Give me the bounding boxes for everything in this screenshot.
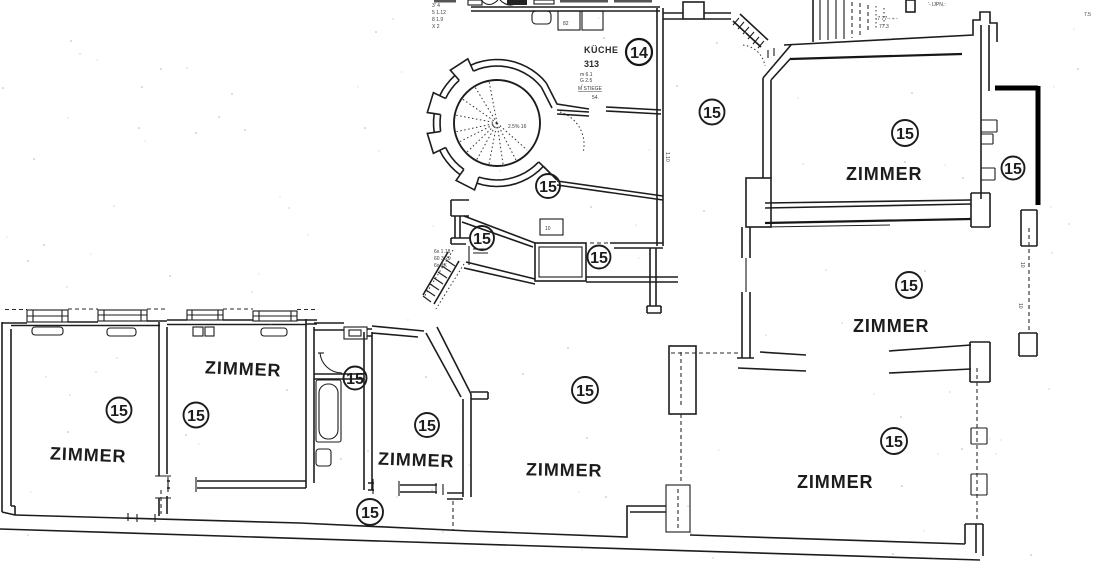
svg-text:KÜCHE: KÜCHE [584,45,619,55]
svg-text:15: 15 [418,418,436,435]
svg-text:5 1.12: 5 1.12 [432,10,446,16]
svg-text:14: 14 [630,45,648,62]
svg-text:ZIMMER: ZIMMER [526,459,603,480]
svg-text:15: 15 [110,403,128,420]
svg-text:'- IJPN.:: '- IJPN.: [928,2,946,8]
svg-text:ZIMMER: ZIMMER [205,357,282,380]
svg-text:313: 313 [584,59,599,69]
svg-text:7.5: 7.5 [1084,12,1091,18]
svg-text:15: 15 [900,278,918,295]
svg-text:15: 15 [346,371,364,388]
svg-text:10: 10 [1017,303,1023,309]
svg-text:15: 15 [473,231,491,248]
svg-text:3' 4: 3' 4 [432,3,440,9]
svg-text:ZIMMER: ZIMMER [50,443,127,466]
svg-text:15: 15 [539,179,557,196]
svg-text:ZIMMER: ZIMMER [378,449,455,472]
svg-text:15: 15 [885,434,903,451]
svg-text:15: 15 [1004,161,1022,178]
svg-text:15: 15 [703,105,721,122]
svg-text:M STIEGE: M STIEGE [578,86,603,92]
svg-text:15: 15 [896,126,914,143]
svg-text:ZIMMER: ZIMMER [846,164,922,184]
svg-text:60 3.29: 60 3.29 [434,256,451,262]
svg-text:82: 82 [563,21,569,27]
svg-text:6x 2K: 6x 2K [434,263,447,269]
svg-text:8 1.9: 8 1.9 [432,17,443,23]
svg-text:15: 15 [576,383,594,400]
svg-text:ZIMMER: ZIMMER [853,316,929,336]
svg-text:2.5% 16: 2.5% 16 [508,124,527,130]
svg-text:X 2: X 2 [432,24,440,30]
svg-text:ZIMMER: ZIMMER [797,472,873,492]
svg-text:6x 1.18: 6x 1.18 [434,249,451,255]
svg-text:1.10: 1.10 [664,152,670,162]
svg-text:54.: 54. [592,95,599,101]
svg-text:15: 15 [590,250,608,267]
svg-text:15: 15 [361,505,379,522]
svg-text:G 2.5: G 2.5 [580,78,592,84]
svg-text:.7 77-- ÷ -: .7 77-- ÷ - [876,16,898,22]
svg-text:15: 15 [187,408,205,425]
svg-text:10: 10 [545,226,551,232]
svg-text:10: 10 [1019,262,1025,268]
